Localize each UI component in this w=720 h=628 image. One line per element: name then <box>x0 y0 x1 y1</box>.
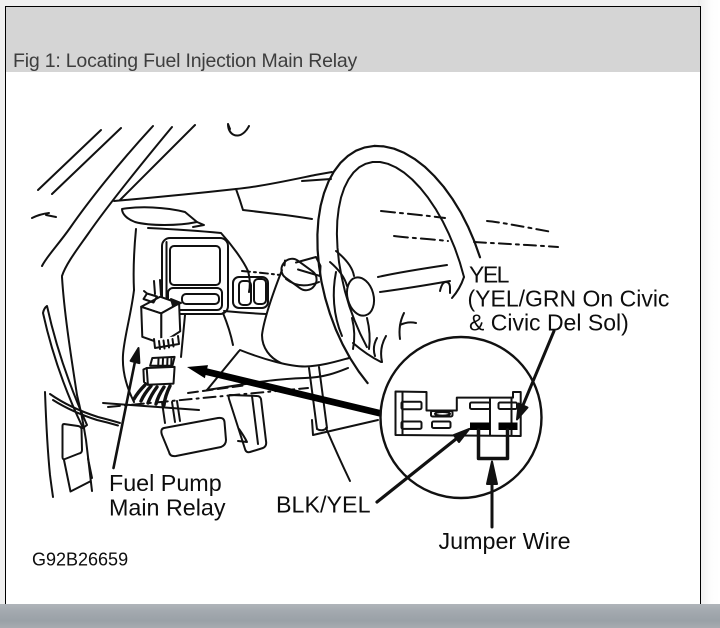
svg-text:BLK/YEL: BLK/YEL <box>276 492 371 518</box>
svg-text:(YEL/GRN On Civic: (YEL/GRN On Civic <box>468 286 670 312</box>
svg-text:Jumper Wire: Jumper Wire <box>439 528 571 554</box>
svg-text:YEL: YEL <box>469 262 510 288</box>
svg-text:G92B26659: G92B26659 <box>32 550 128 570</box>
svg-text:Fuel Pump: Fuel Pump <box>109 470 222 496</box>
svg-text:& Civic Del Sol): & Civic Del Sol) <box>469 310 629 336</box>
svg-text:Main Relay: Main Relay <box>109 495 226 521</box>
